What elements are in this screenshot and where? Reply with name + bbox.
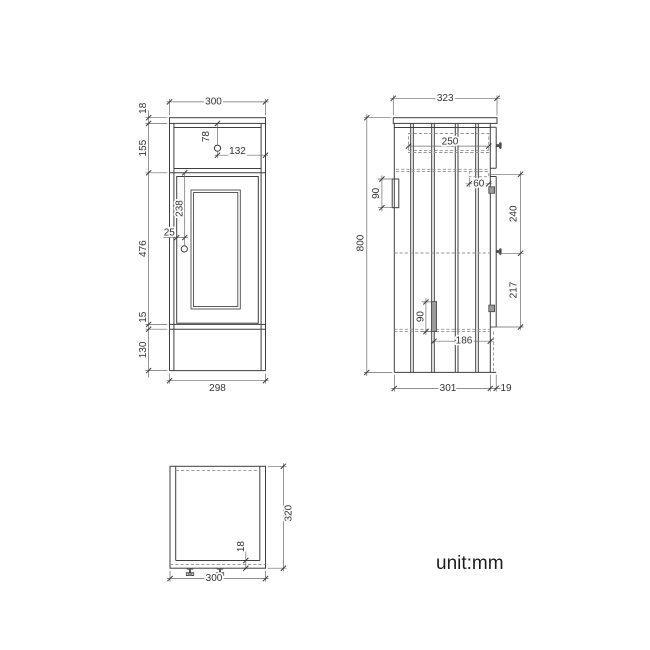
hinge-lower-icon bbox=[489, 305, 495, 312]
dim-side-drawer-box-depth: 250 bbox=[442, 137, 459, 148]
dim-front-drawer-section-height: 155 bbox=[138, 139, 149, 156]
dim-side-bottom-shelf-depth: 186 bbox=[456, 336, 473, 347]
dim-side-runner-bracket-width: 60 bbox=[473, 178, 485, 189]
technical-drawing-page: 300 18 155 476 15 130 298 78 132 238 25 bbox=[0, 0, 650, 650]
dim-front-countertop-thickness: 18 bbox=[138, 102, 149, 114]
dim-drawer-knob-offset-top: 78 bbox=[201, 131, 212, 143]
dim-door-knob-offset-top: 238 bbox=[175, 200, 186, 217]
dim-side-knob-spacing-lower: 217 bbox=[509, 281, 520, 298]
dim-side-overall-height: 800 bbox=[355, 234, 366, 251]
dim-side-depth-top: 323 bbox=[437, 93, 454, 104]
dim-front-door-height: 476 bbox=[138, 240, 149, 257]
dim-drawer-knob-offset-side: 132 bbox=[229, 146, 246, 157]
drawing-svg: 300 18 155 476 15 130 298 78 132 238 25 bbox=[0, 0, 650, 650]
unit-note: unit:mm bbox=[436, 553, 504, 574]
dim-front-width-bottom: 298 bbox=[209, 383, 226, 394]
dim-door-knob-offset-edge: 25 bbox=[164, 227, 176, 238]
dim-side-knob-spacing-upper: 240 bbox=[509, 205, 520, 222]
dim-side-door-thickness: 19 bbox=[500, 383, 512, 394]
dim-side-carcass-depth: 301 bbox=[440, 383, 457, 394]
dim-plan-bottom-panel-thickness: 18 bbox=[236, 541, 247, 553]
hinge-upper-icon bbox=[489, 187, 495, 194]
dim-plan-depth: 320 bbox=[284, 504, 295, 521]
dim-front-plinth-height: 130 bbox=[138, 341, 149, 358]
dim-side-lower-bracket-height: 90 bbox=[415, 311, 426, 323]
wall-bracket-lower bbox=[431, 302, 436, 332]
dim-front-under-door-gap: 15 bbox=[138, 311, 149, 323]
dim-plan-width: 300 bbox=[206, 573, 223, 584]
dim-side-upper-bracket-height: 90 bbox=[371, 187, 382, 199]
page-background bbox=[0, 0, 650, 650]
dim-front-width-top: 300 bbox=[205, 96, 222, 107]
